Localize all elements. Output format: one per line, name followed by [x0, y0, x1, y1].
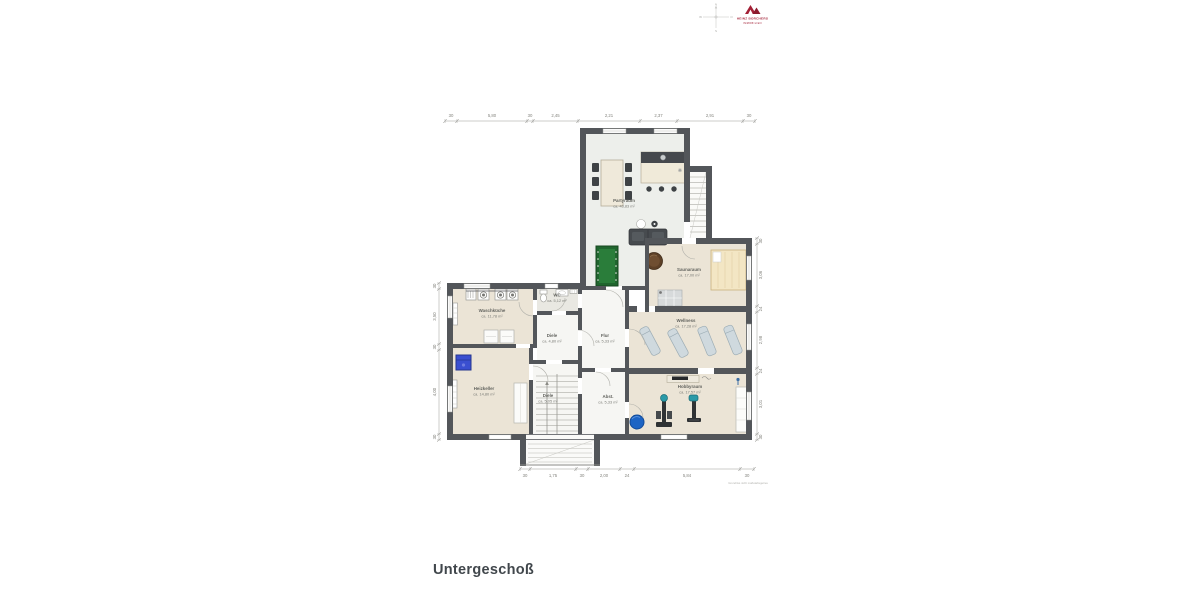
- compass-icon: [703, 6, 729, 28]
- svg-text:2,37: 2,37: [654, 113, 663, 118]
- svg-text:30: 30: [758, 238, 763, 243]
- svg-text:Flur: Flur: [601, 333, 610, 338]
- svg-text:Hobbyraum: Hobbyraum: [678, 384, 702, 389]
- floor-hobbyraum: [629, 374, 746, 434]
- svg-text:Abst.: Abst.: [603, 394, 614, 399]
- dimension-chain-right: 30 3,06 24 2,98 24 3,01 30: [755, 236, 763, 442]
- plan-caption: Grundriss nicht maßstabsgetreu: [728, 481, 768, 485]
- stove-icon: ❋: [678, 168, 682, 174]
- svg-text:ca. 14,80 m²: ca. 14,80 m²: [473, 391, 495, 396]
- svg-text:30: 30: [758, 434, 763, 439]
- radiator-wc: [570, 290, 577, 294]
- storage-unit: [514, 383, 527, 423]
- billiard-table: [596, 246, 618, 286]
- shower: [658, 290, 682, 306]
- svg-text:3,06: 3,06: [758, 270, 763, 279]
- compass-e-label: O: [730, 15, 733, 19]
- svg-text:ca. 17,28 m²: ca. 17,28 m²: [675, 323, 697, 328]
- svg-text:ca. 43,83 m²: ca. 43,83 m²: [613, 203, 635, 208]
- svg-text:5,84: 5,84: [683, 473, 692, 478]
- boiler: [456, 355, 471, 370]
- svg-text:ca. 5,33 m²: ca. 5,33 m²: [598, 399, 618, 404]
- svg-text:2,00: 2,00: [600, 473, 609, 478]
- svg-text:Waschküche: Waschküche: [479, 308, 506, 313]
- dimension-chain-bottom: 30 1,75 30 2,00 24 5,84 30: [518, 467, 756, 478]
- cabinet: [736, 387, 747, 432]
- toilet: [540, 290, 547, 302]
- room-label-hobbyraum: Hobbyraum ca. 17,57 m²: [678, 384, 702, 394]
- svg-text:24: 24: [625, 473, 630, 478]
- svg-text:30: 30: [432, 344, 437, 349]
- compass-s-label: S: [715, 29, 717, 33]
- svg-text:30: 30: [523, 473, 528, 478]
- svg-text:ca. 17,57 m²: ca. 17,57 m²: [679, 389, 701, 394]
- svg-text:24: 24: [758, 306, 763, 311]
- svg-text:1,75: 1,75: [549, 473, 558, 478]
- bar-stools: [646, 186, 676, 191]
- svg-text:30: 30: [745, 473, 750, 478]
- svg-text:Heizkeller: Heizkeller: [474, 386, 495, 391]
- svg-text:30: 30: [432, 283, 437, 288]
- svg-text:Partyraum: Partyraum: [613, 198, 635, 203]
- svg-text:30: 30: [528, 113, 533, 118]
- svg-text:2,21: 2,21: [605, 113, 614, 118]
- svg-text:ca. 5,12 m²: ca. 5,12 m²: [547, 298, 567, 303]
- room-label-heizkeller: Heizkeller ca. 14,80 m²: [473, 386, 495, 396]
- room-label-wellness: Wellness ca. 17,28 m²: [675, 318, 697, 328]
- svg-text:24: 24: [758, 368, 763, 373]
- svg-text:30: 30: [449, 113, 454, 118]
- svg-text:ca. 4,80 m²: ca. 4,80 m²: [542, 338, 562, 343]
- room-label-saunaraum: Saunaraum ca. 17,00 m²: [677, 267, 701, 277]
- exercise-ball: [630, 415, 644, 429]
- company-name: HEINZ BORCHERS: [737, 17, 768, 21]
- sauna-bench: [711, 250, 746, 290]
- svg-text:30: 30: [432, 434, 437, 439]
- svg-text:4,00: 4,00: [432, 387, 437, 396]
- room-label-waschkueche: Waschküche ca. 11,78 m²: [479, 308, 506, 318]
- floor-flur: [582, 289, 625, 368]
- radiator-waschkueche: [453, 303, 458, 325]
- svg-text:2,98: 2,98: [758, 335, 763, 344]
- svg-text:5,80: 5,80: [488, 113, 497, 118]
- svg-text:Wellness: Wellness: [677, 318, 697, 323]
- svg-text:ca. 17,00 m²: ca. 17,00 m²: [678, 272, 700, 277]
- svg-text:3,01: 3,01: [758, 399, 763, 408]
- brand-block: N O S W HEINZ BORCHERS IMMOBILIEN: [695, 2, 775, 36]
- svg-text:3,50: 3,50: [432, 312, 437, 321]
- svg-text:30: 30: [747, 113, 752, 118]
- floor-plan: ❋: [430, 100, 770, 500]
- page-title: Untergeschoß: [433, 562, 534, 578]
- svg-text:Saunaraum: Saunaraum: [677, 267, 701, 272]
- compass-w-label: W: [699, 15, 702, 19]
- svg-text:2,45: 2,45: [551, 113, 560, 118]
- company-logo-icon: [745, 5, 761, 14]
- compass-n-label: N: [715, 2, 717, 6]
- svg-text:30: 30: [580, 473, 585, 478]
- svg-text:ca. 5,05 m²: ca. 5,05 m²: [538, 398, 558, 403]
- room-label-partyraum: Partyraum ca. 43,83 m²: [613, 198, 635, 208]
- svg-text:Diele: Diele: [547, 333, 558, 338]
- svg-text:ca. 5,33 m²: ca. 5,33 m²: [595, 338, 615, 343]
- svg-text:ca. 11,78 m²: ca. 11,78 m²: [481, 313, 503, 318]
- dimension-chain-left: 30 3,50 30 4,00 30: [432, 281, 441, 442]
- svg-text:Diele: Diele: [543, 393, 554, 398]
- company-tagline: IMMOBILIEN: [743, 22, 762, 25]
- radiator-heizkeller: [453, 380, 458, 408]
- svg-text:WC: WC: [553, 293, 561, 298]
- svg-text:2,91: 2,91: [706, 113, 715, 118]
- dimension-chain-top: 30 5,80 30 2,45 2,21 2,37 2,91 30: [443, 113, 757, 123]
- page: N O S W HEINZ BORCHERS IMMOBILIEN: [0, 0, 1200, 600]
